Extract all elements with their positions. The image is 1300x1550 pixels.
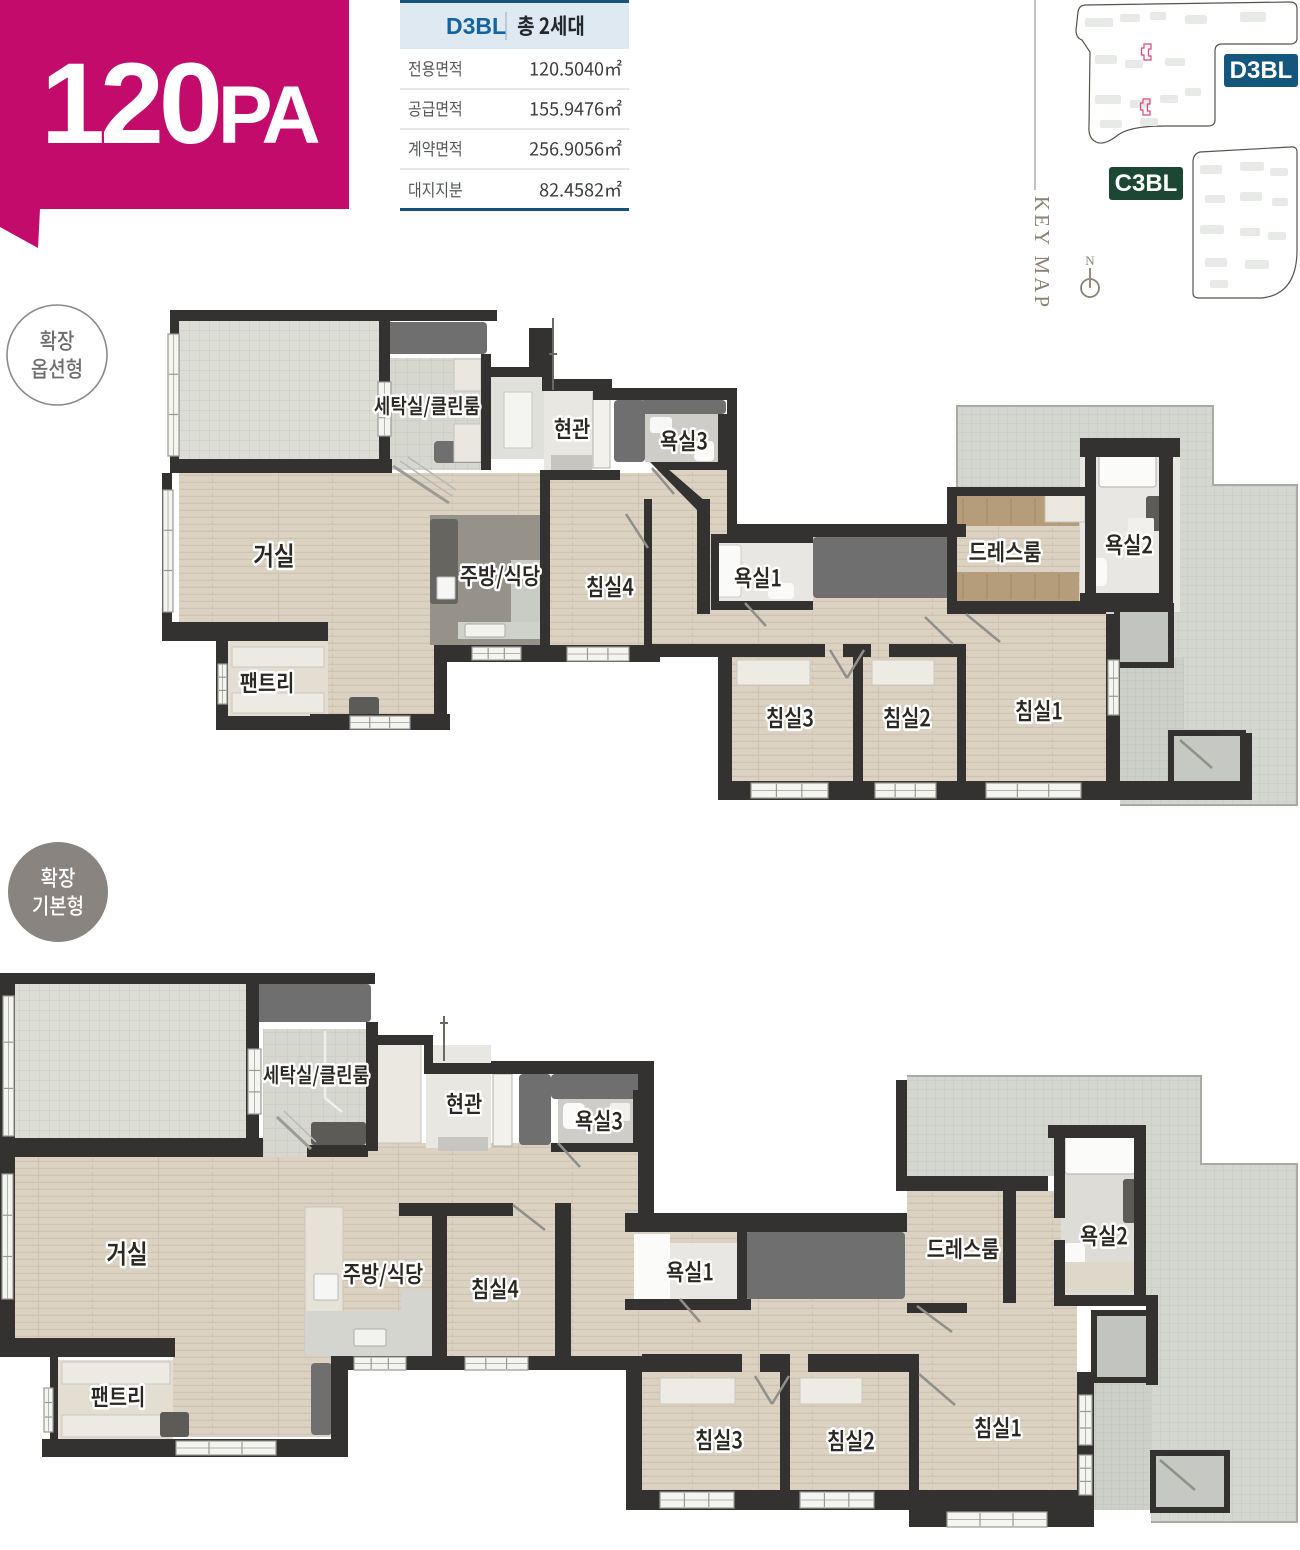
- svg-text:KEY MAP: KEY MAP: [1030, 196, 1054, 310]
- svg-text:D3BL: D3BL: [446, 13, 506, 39]
- svg-text:D3BL: D3BL: [1230, 57, 1293, 84]
- svg-text:C3BL: C3BL: [1115, 170, 1178, 197]
- svg-text:N: N: [1085, 253, 1095, 268]
